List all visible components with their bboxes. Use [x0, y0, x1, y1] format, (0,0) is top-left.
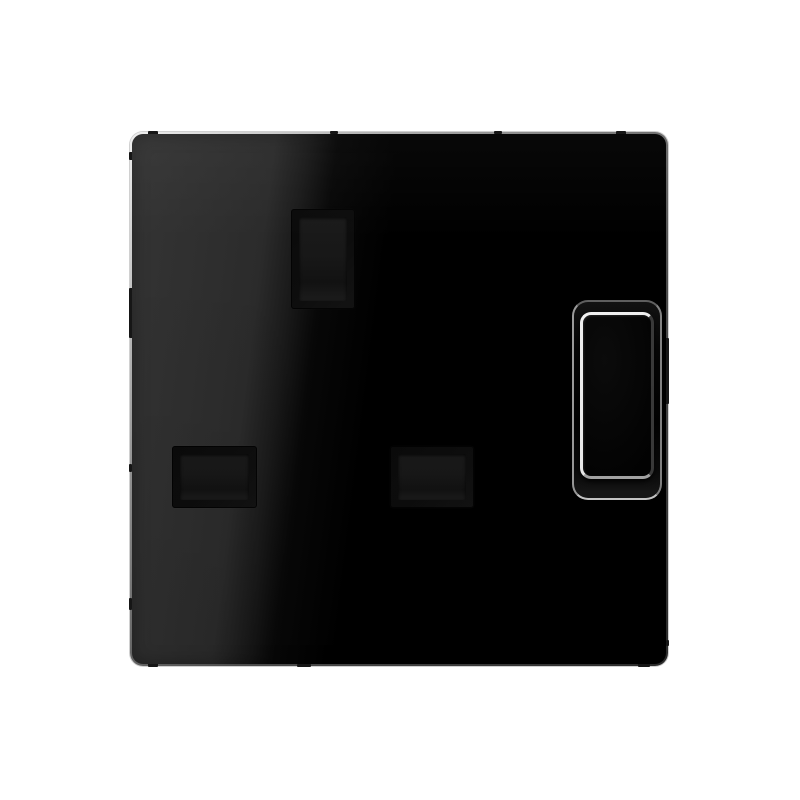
rocker-switch[interactable] — [580, 312, 654, 479]
live-pin-aperture — [172, 446, 257, 508]
live-pin-hole — [180, 454, 249, 500]
mounting-claw-notch — [297, 664, 311, 667]
product-photo — [0, 0, 800, 800]
earth-pin-hole — [299, 217, 347, 301]
earth-pin-aperture — [291, 209, 355, 309]
socket-faceplate — [132, 134, 666, 664]
neutral-pin-aperture — [390, 446, 474, 508]
rocker-switch-well — [572, 300, 662, 500]
socket-faceplate-rim — [130, 132, 668, 666]
mounting-claw-notch — [666, 640, 669, 646]
neutral-pin-hole — [398, 454, 466, 500]
